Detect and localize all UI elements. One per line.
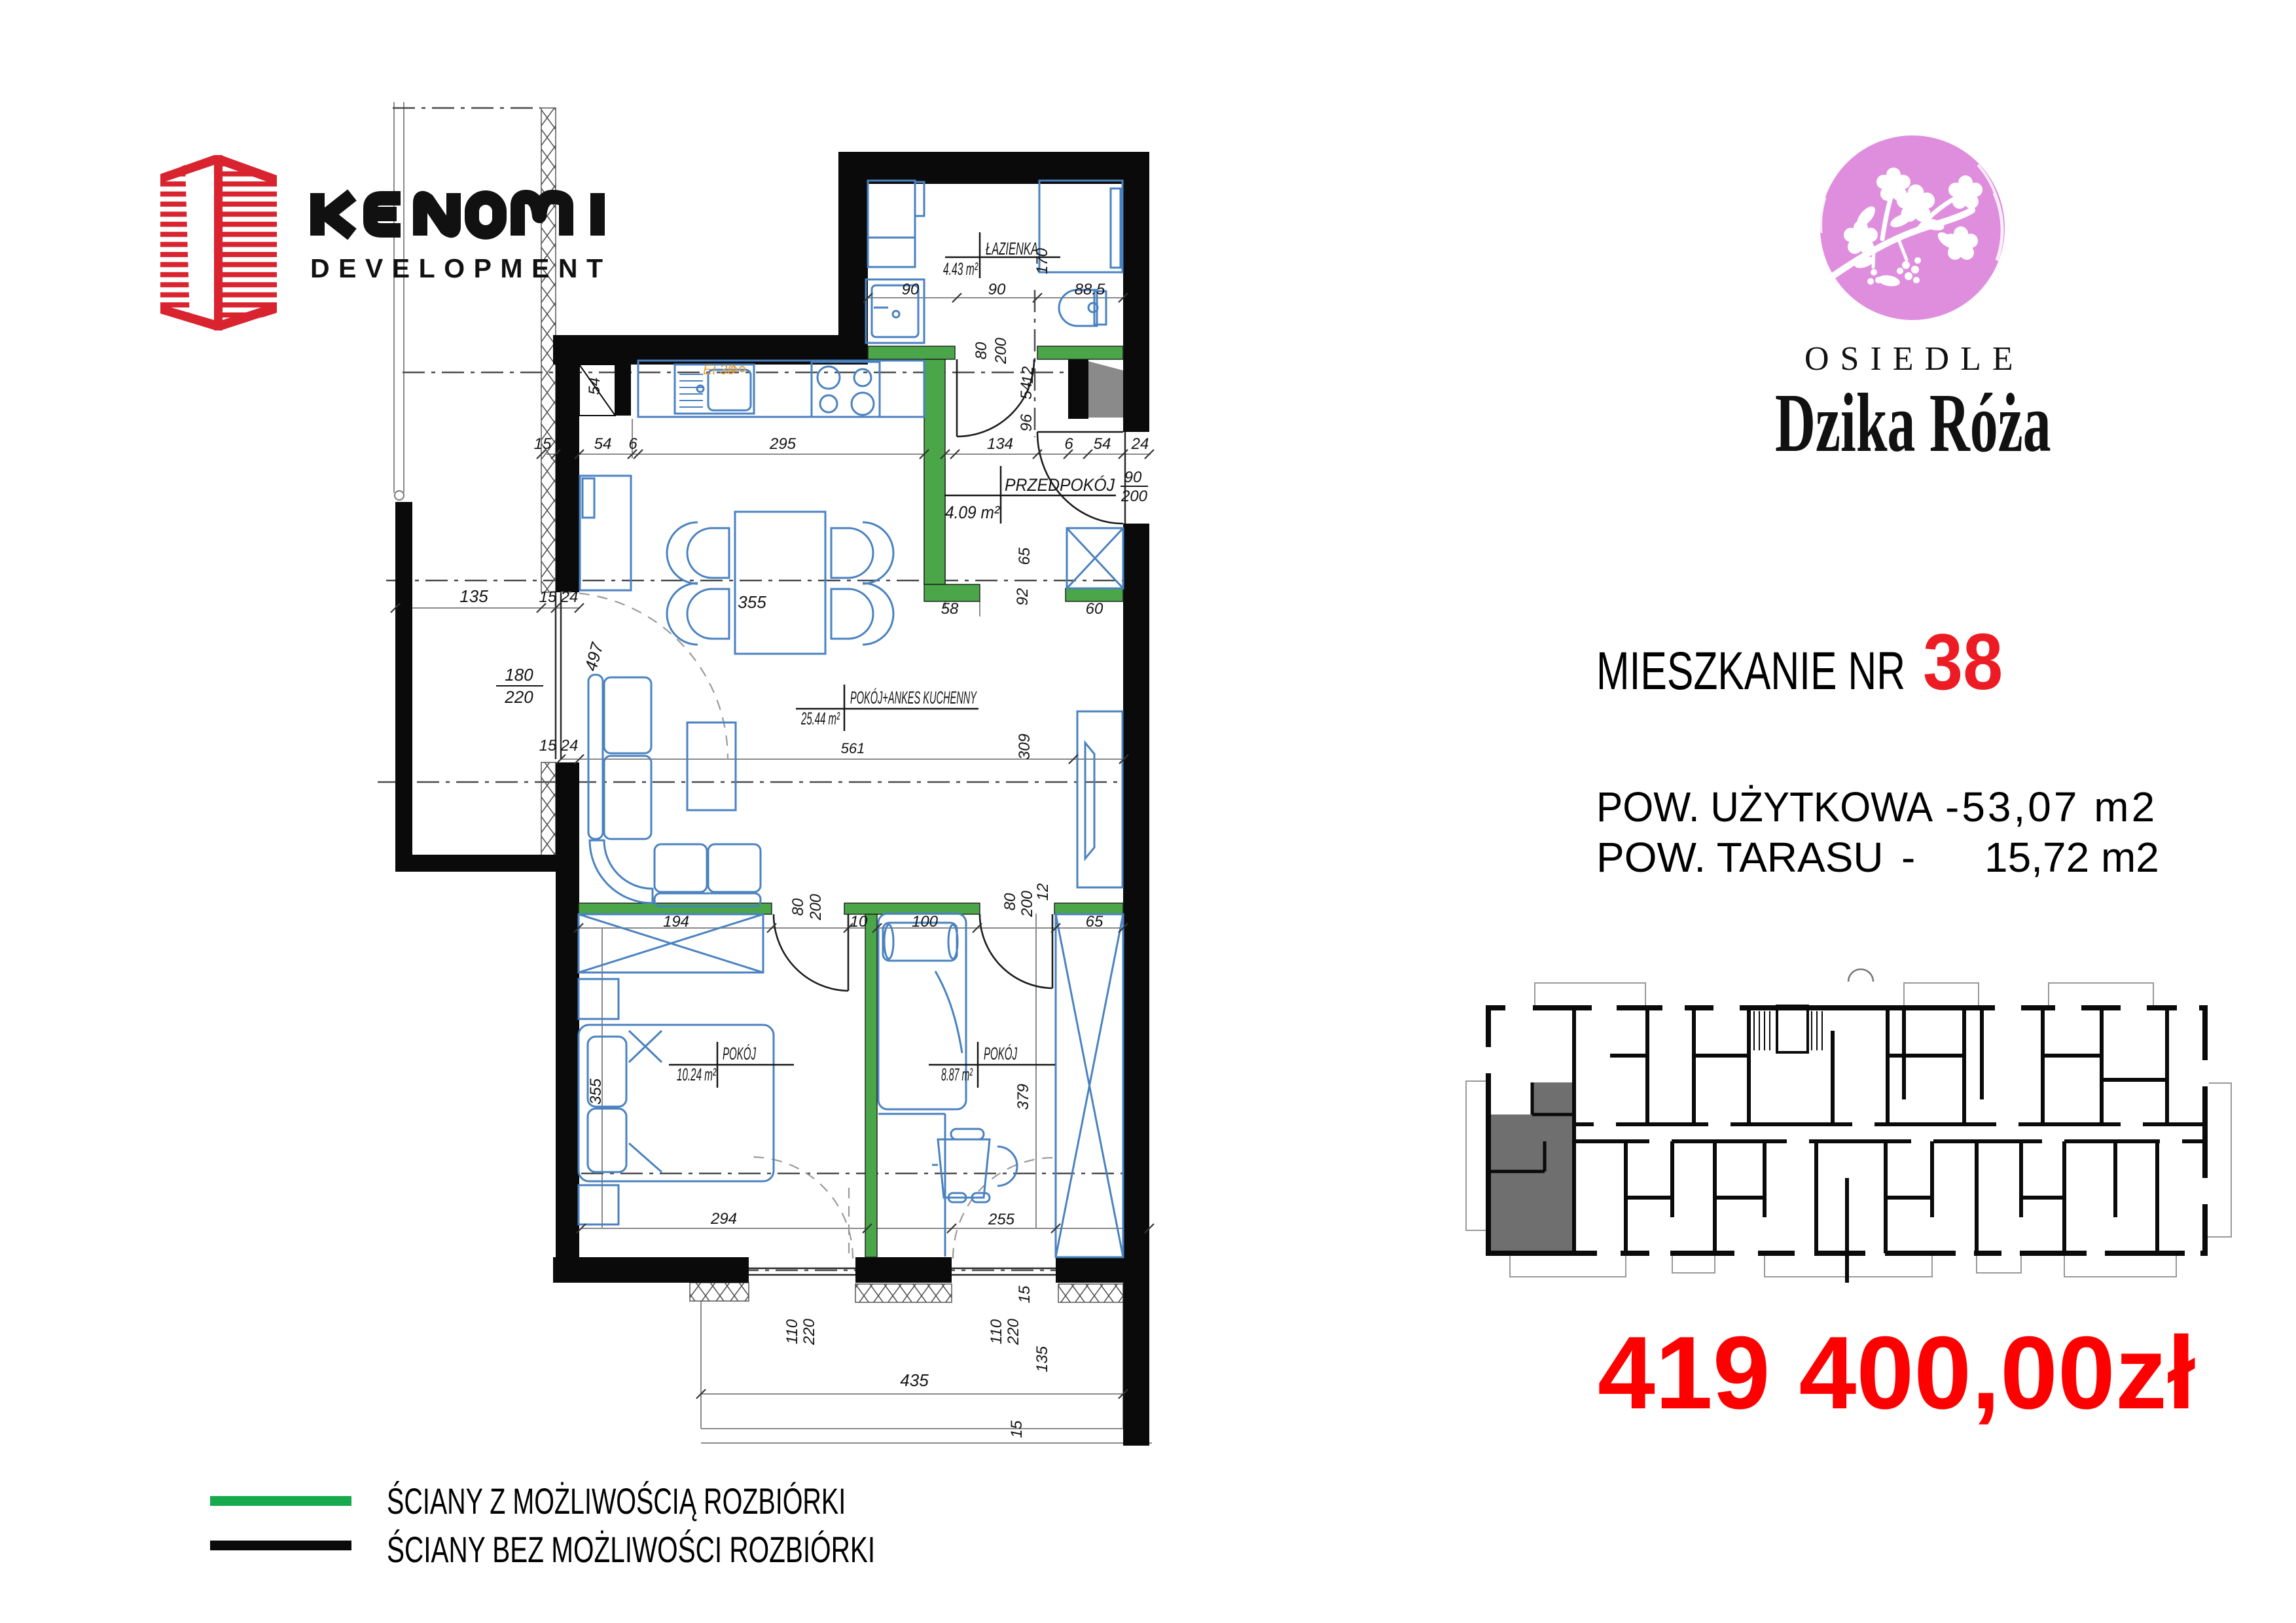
svg-text:90: 90 (1124, 469, 1142, 486)
svg-text:194: 194 (663, 913, 689, 931)
svg-text:88.5: 88.5 (1075, 281, 1105, 298)
svg-text:8.87 m²: 8.87 m² (941, 1065, 973, 1084)
svg-text:80: 80 (1001, 893, 1019, 910)
svg-text:25.44 m²: 25.44 m² (800, 709, 840, 728)
svg-text:90: 90 (988, 281, 1006, 298)
svg-text:24: 24 (560, 737, 579, 755)
svg-text:60: 60 (1086, 600, 1103, 618)
svg-text:135: 135 (459, 586, 488, 606)
svg-text:80: 80 (789, 898, 807, 916)
svg-text:PRZEDPOKÓJ: PRZEDPOKÓJ (1005, 474, 1115, 495)
svg-text:135: 135 (1033, 1346, 1051, 1372)
svg-text:54: 54 (594, 435, 612, 453)
svg-text:255: 255 (988, 1211, 1015, 1228)
svg-text:54: 54 (1018, 382, 1035, 400)
svg-text:110: 110 (783, 1319, 801, 1344)
svg-text:110: 110 (988, 1319, 1005, 1344)
svg-text:90: 90 (902, 281, 920, 298)
svg-text:65: 65 (1086, 913, 1103, 931)
svg-text:54: 54 (586, 378, 603, 395)
svg-text:15: 15 (1016, 1285, 1033, 1303)
svg-text:200: 200 (992, 337, 1010, 365)
svg-text:58: 58 (941, 600, 959, 618)
svg-text:80: 80 (973, 342, 990, 359)
svg-text:6: 6 (1064, 435, 1073, 453)
svg-text:POKÓJ+ANKES KUCHENNY: POKÓJ+ANKES KUCHENNY (850, 687, 977, 707)
svg-text:15: 15 (1008, 1420, 1026, 1438)
svg-text:96: 96 (1018, 414, 1035, 431)
svg-text:4.09 m²: 4.09 m² (945, 503, 1000, 522)
svg-text:6: 6 (628, 435, 637, 453)
svg-text:POKÓJ: POKÓJ (984, 1043, 1017, 1063)
svg-text:200: 200 (1121, 488, 1148, 505)
svg-text:POKÓJ: POKÓJ (723, 1043, 756, 1063)
svg-text:220: 220 (504, 687, 533, 707)
svg-text:10: 10 (850, 913, 868, 931)
svg-text:DEVELOPMENT: DEVELOPMENT (310, 253, 612, 283)
svg-text:379: 379 (1014, 1084, 1032, 1110)
svg-text:65: 65 (1016, 547, 1033, 565)
svg-text:12: 12 (1034, 883, 1052, 901)
svg-text:435: 435 (900, 1370, 929, 1390)
svg-text:134: 134 (987, 435, 1013, 453)
svg-text:220: 220 (1005, 1318, 1022, 1346)
svg-text:170: 170 (1033, 247, 1051, 274)
svg-text:54: 54 (1094, 435, 1111, 453)
svg-text:12: 12 (1019, 366, 1037, 384)
svg-text:15: 15 (539, 737, 557, 755)
svg-text:497: 497 (581, 639, 607, 673)
svg-text:180: 180 (505, 665, 533, 685)
svg-text:561: 561 (841, 740, 865, 757)
svg-text:355: 355 (738, 592, 766, 612)
svg-text:24: 24 (560, 588, 579, 606)
svg-text:220: 220 (800, 1318, 818, 1346)
svg-text:200: 200 (807, 893, 825, 921)
svg-text:4.43 m²: 4.43 m² (943, 259, 978, 279)
svg-text:294: 294 (710, 1210, 737, 1228)
svg-text:309: 309 (1016, 734, 1033, 760)
svg-text:15: 15 (534, 435, 552, 453)
svg-text:100: 100 (912, 913, 939, 931)
svg-text:200: 200 (1018, 890, 1036, 918)
svg-text:355: 355 (587, 1078, 605, 1105)
svg-text:24: 24 (1131, 435, 1149, 453)
svg-text:10.24 m²: 10.24 m² (677, 1065, 717, 1084)
svg-text:15: 15 (539, 588, 557, 606)
svg-text:EI 30: EI 30 (703, 363, 735, 378)
svg-text:ŁAZIENKA: ŁAZIENKA (986, 239, 1038, 259)
svg-text:92: 92 (1014, 588, 1031, 606)
svg-text:295: 295 (769, 435, 797, 453)
